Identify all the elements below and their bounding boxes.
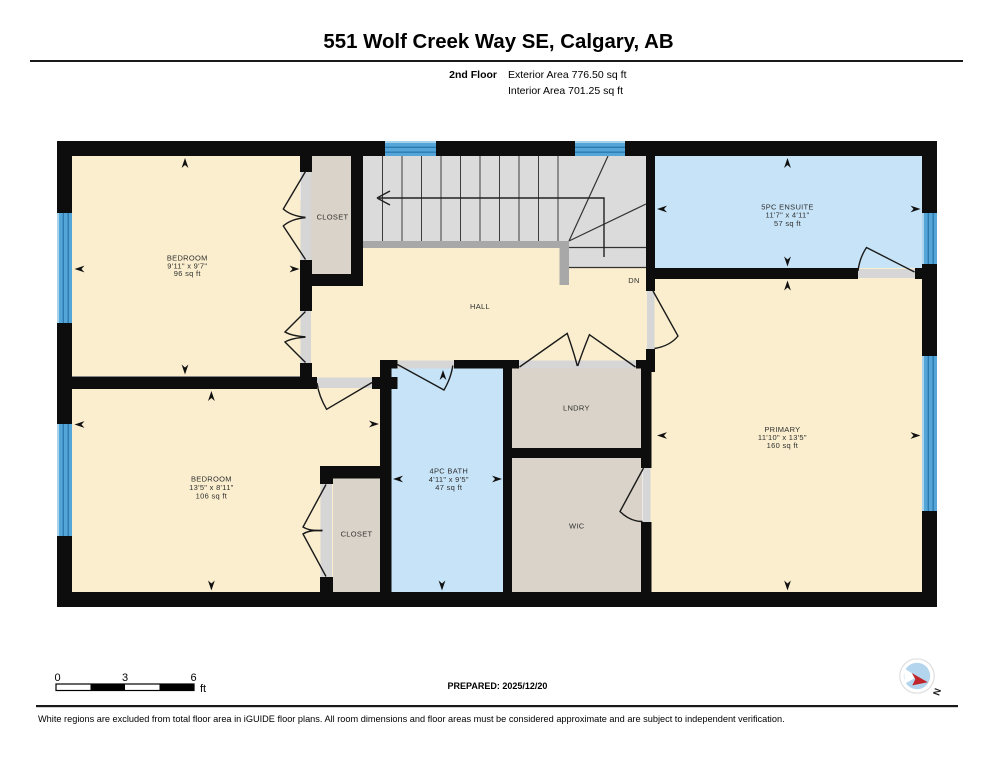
svg-text:6: 6 [190,672,196,684]
svg-text:HALL: HALL [470,302,490,311]
svg-text:2nd Floor: 2nd Floor [449,69,497,81]
svg-text:96 sq ft: 96 sq ft [174,269,202,278]
svg-text:White regions are excluded fro: White regions are excluded from total fl… [38,714,785,724]
svg-text:3: 3 [122,672,128,684]
svg-text:WIC: WIC [569,521,585,530]
svg-text:Exterior Area 776.50 sq ft: Exterior Area 776.50 sq ft [508,69,627,81]
svg-text:551 Wolf Creek Way SE, Calgary: 551 Wolf Creek Way SE, Calgary, AB [323,31,673,53]
svg-text:LNDRY: LNDRY [563,403,590,412]
svg-text:47 sq ft: 47 sq ft [435,483,463,492]
svg-text:CLOSET: CLOSET [341,529,373,538]
svg-text:0: 0 [54,672,60,684]
svg-text:57 sq ft: 57 sq ft [774,219,802,228]
svg-text:Interior Area 701.25 sq ft: Interior Area 701.25 sq ft [508,85,623,97]
svg-text:PREPARED: 2025/12/20: PREPARED: 2025/12/20 [448,681,548,691]
svg-text:ft: ft [200,683,206,695]
svg-text:CLOSET: CLOSET [317,212,349,221]
svg-text:160 sq ft: 160 sq ft [767,441,799,450]
svg-text:DN: DN [628,276,639,285]
svg-text:106 sq ft: 106 sq ft [196,491,228,500]
